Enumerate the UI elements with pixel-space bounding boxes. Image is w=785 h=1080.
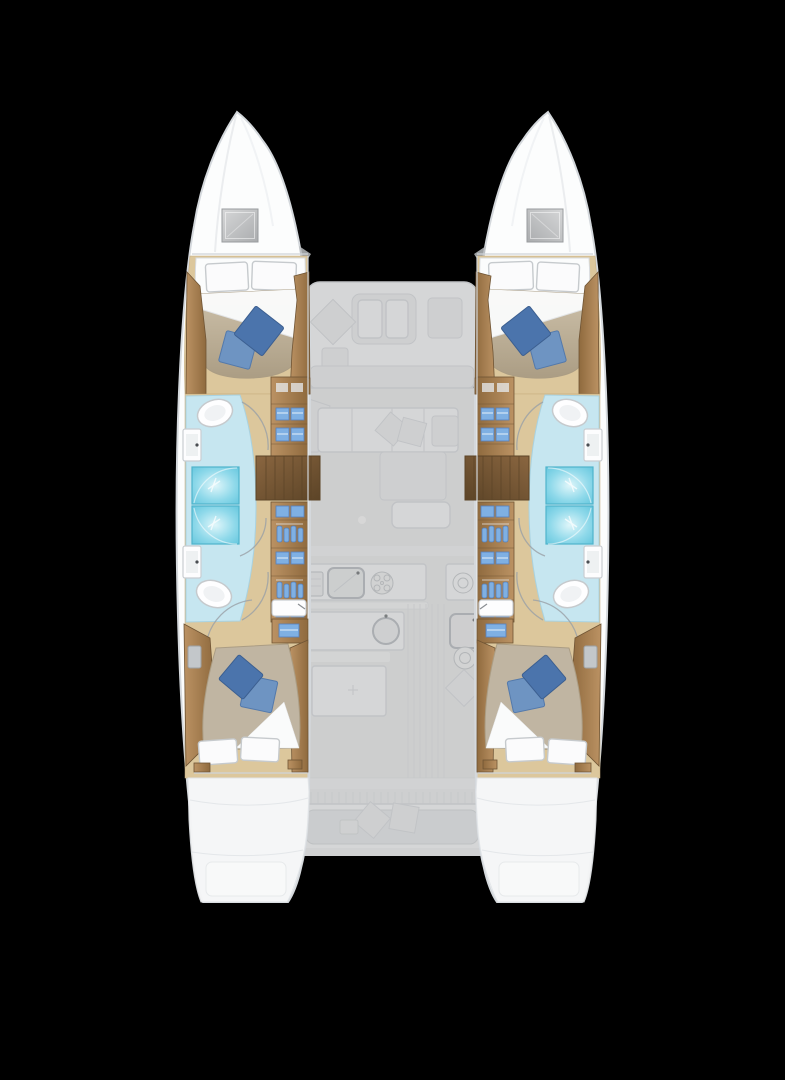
forward-cockpit-bench [310,366,474,388]
galley-table-edge [306,652,390,662]
starboard-hull [465,112,608,902]
galley-shelf [304,602,428,609]
aft-crossbeam-band [300,848,485,856]
saloon [304,388,482,790]
galley-step-band [306,546,478,556]
floorplan-canvas [0,0,785,1080]
catamaran-floorplan [0,0,785,1080]
saloon-floor-dot [358,516,366,524]
aft-cockpit-small-cushion [340,820,358,834]
forward-cockpit-table-leaf-left [358,300,382,338]
aft-cockpit-pillow-b [389,803,419,833]
galley-nav-table [312,666,386,716]
port-hull [177,112,320,902]
saloon-side-cushion [432,416,458,446]
saloon-aft-door-band [306,778,478,790]
galley-burner-lower-right [454,647,476,669]
forward-cockpit-table-leaf-right [386,300,408,338]
saloon-bench [392,502,450,528]
saloon-table [380,452,446,500]
galley-burner-left [371,572,393,594]
forward-cockpit-cushion-right [428,298,462,338]
forward-cockpit [306,282,478,390]
galley-round-sink [373,618,399,644]
